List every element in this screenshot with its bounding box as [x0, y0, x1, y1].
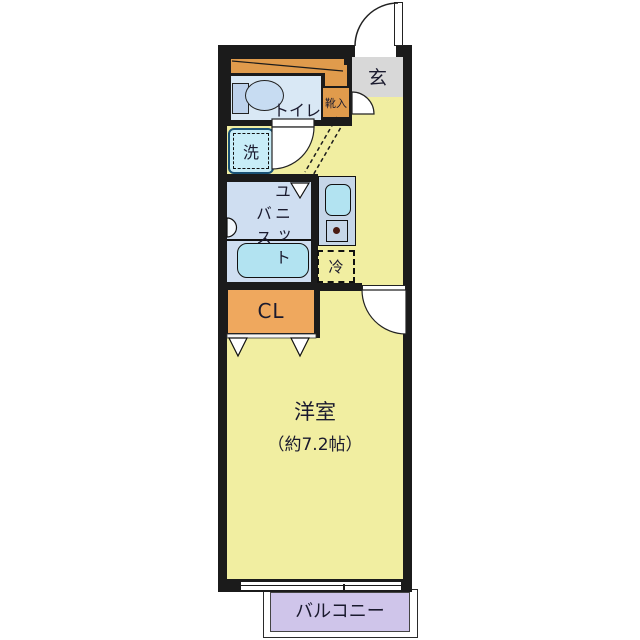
room-door-leaf — [362, 285, 406, 293]
wall-right — [403, 45, 412, 592]
balcony-label: バルコニー — [295, 601, 385, 622]
shoe-cabinet-label: 靴入 — [325, 95, 347, 111]
sliding-window — [240, 581, 402, 591]
shoe-cabinet: 靴入 — [323, 88, 349, 117]
washing-machine-icon: 洗 — [228, 128, 274, 174]
washing-machine-label: 洗 — [233, 133, 269, 169]
stove-burner-icon — [333, 227, 340, 234]
entrance-label: 玄 — [368, 67, 387, 89]
refrigerator-space: 冷 — [317, 250, 355, 283]
wall-left — [218, 45, 227, 592]
wall-mid — [318, 283, 362, 291]
kitchen-sink-icon — [325, 184, 351, 216]
unit-bath-label-col-left: バス — [250, 205, 274, 259]
toilet-label: トイレ — [273, 97, 321, 121]
western-room-size-label: （約7.2帖） — [222, 430, 408, 455]
entrance-door-arc — [355, 3, 398, 46]
wall-top-left — [218, 45, 355, 57]
floorplan: 玄 バルコニー 靴入 トイレ 洗 ユニット バス 冷 CL — [0, 0, 640, 640]
closet: CL — [228, 290, 314, 333]
balcony-area: バルコニー — [270, 592, 410, 632]
shoe-cabinet-upper — [325, 65, 347, 86]
refrigerator-label: 冷 — [328, 256, 343, 277]
entrance-door-leaf — [394, 2, 403, 46]
entrance-area: 玄 — [350, 57, 405, 97]
western-room-label: 洋室 — [222, 396, 408, 426]
closet-label: CL — [257, 299, 284, 323]
